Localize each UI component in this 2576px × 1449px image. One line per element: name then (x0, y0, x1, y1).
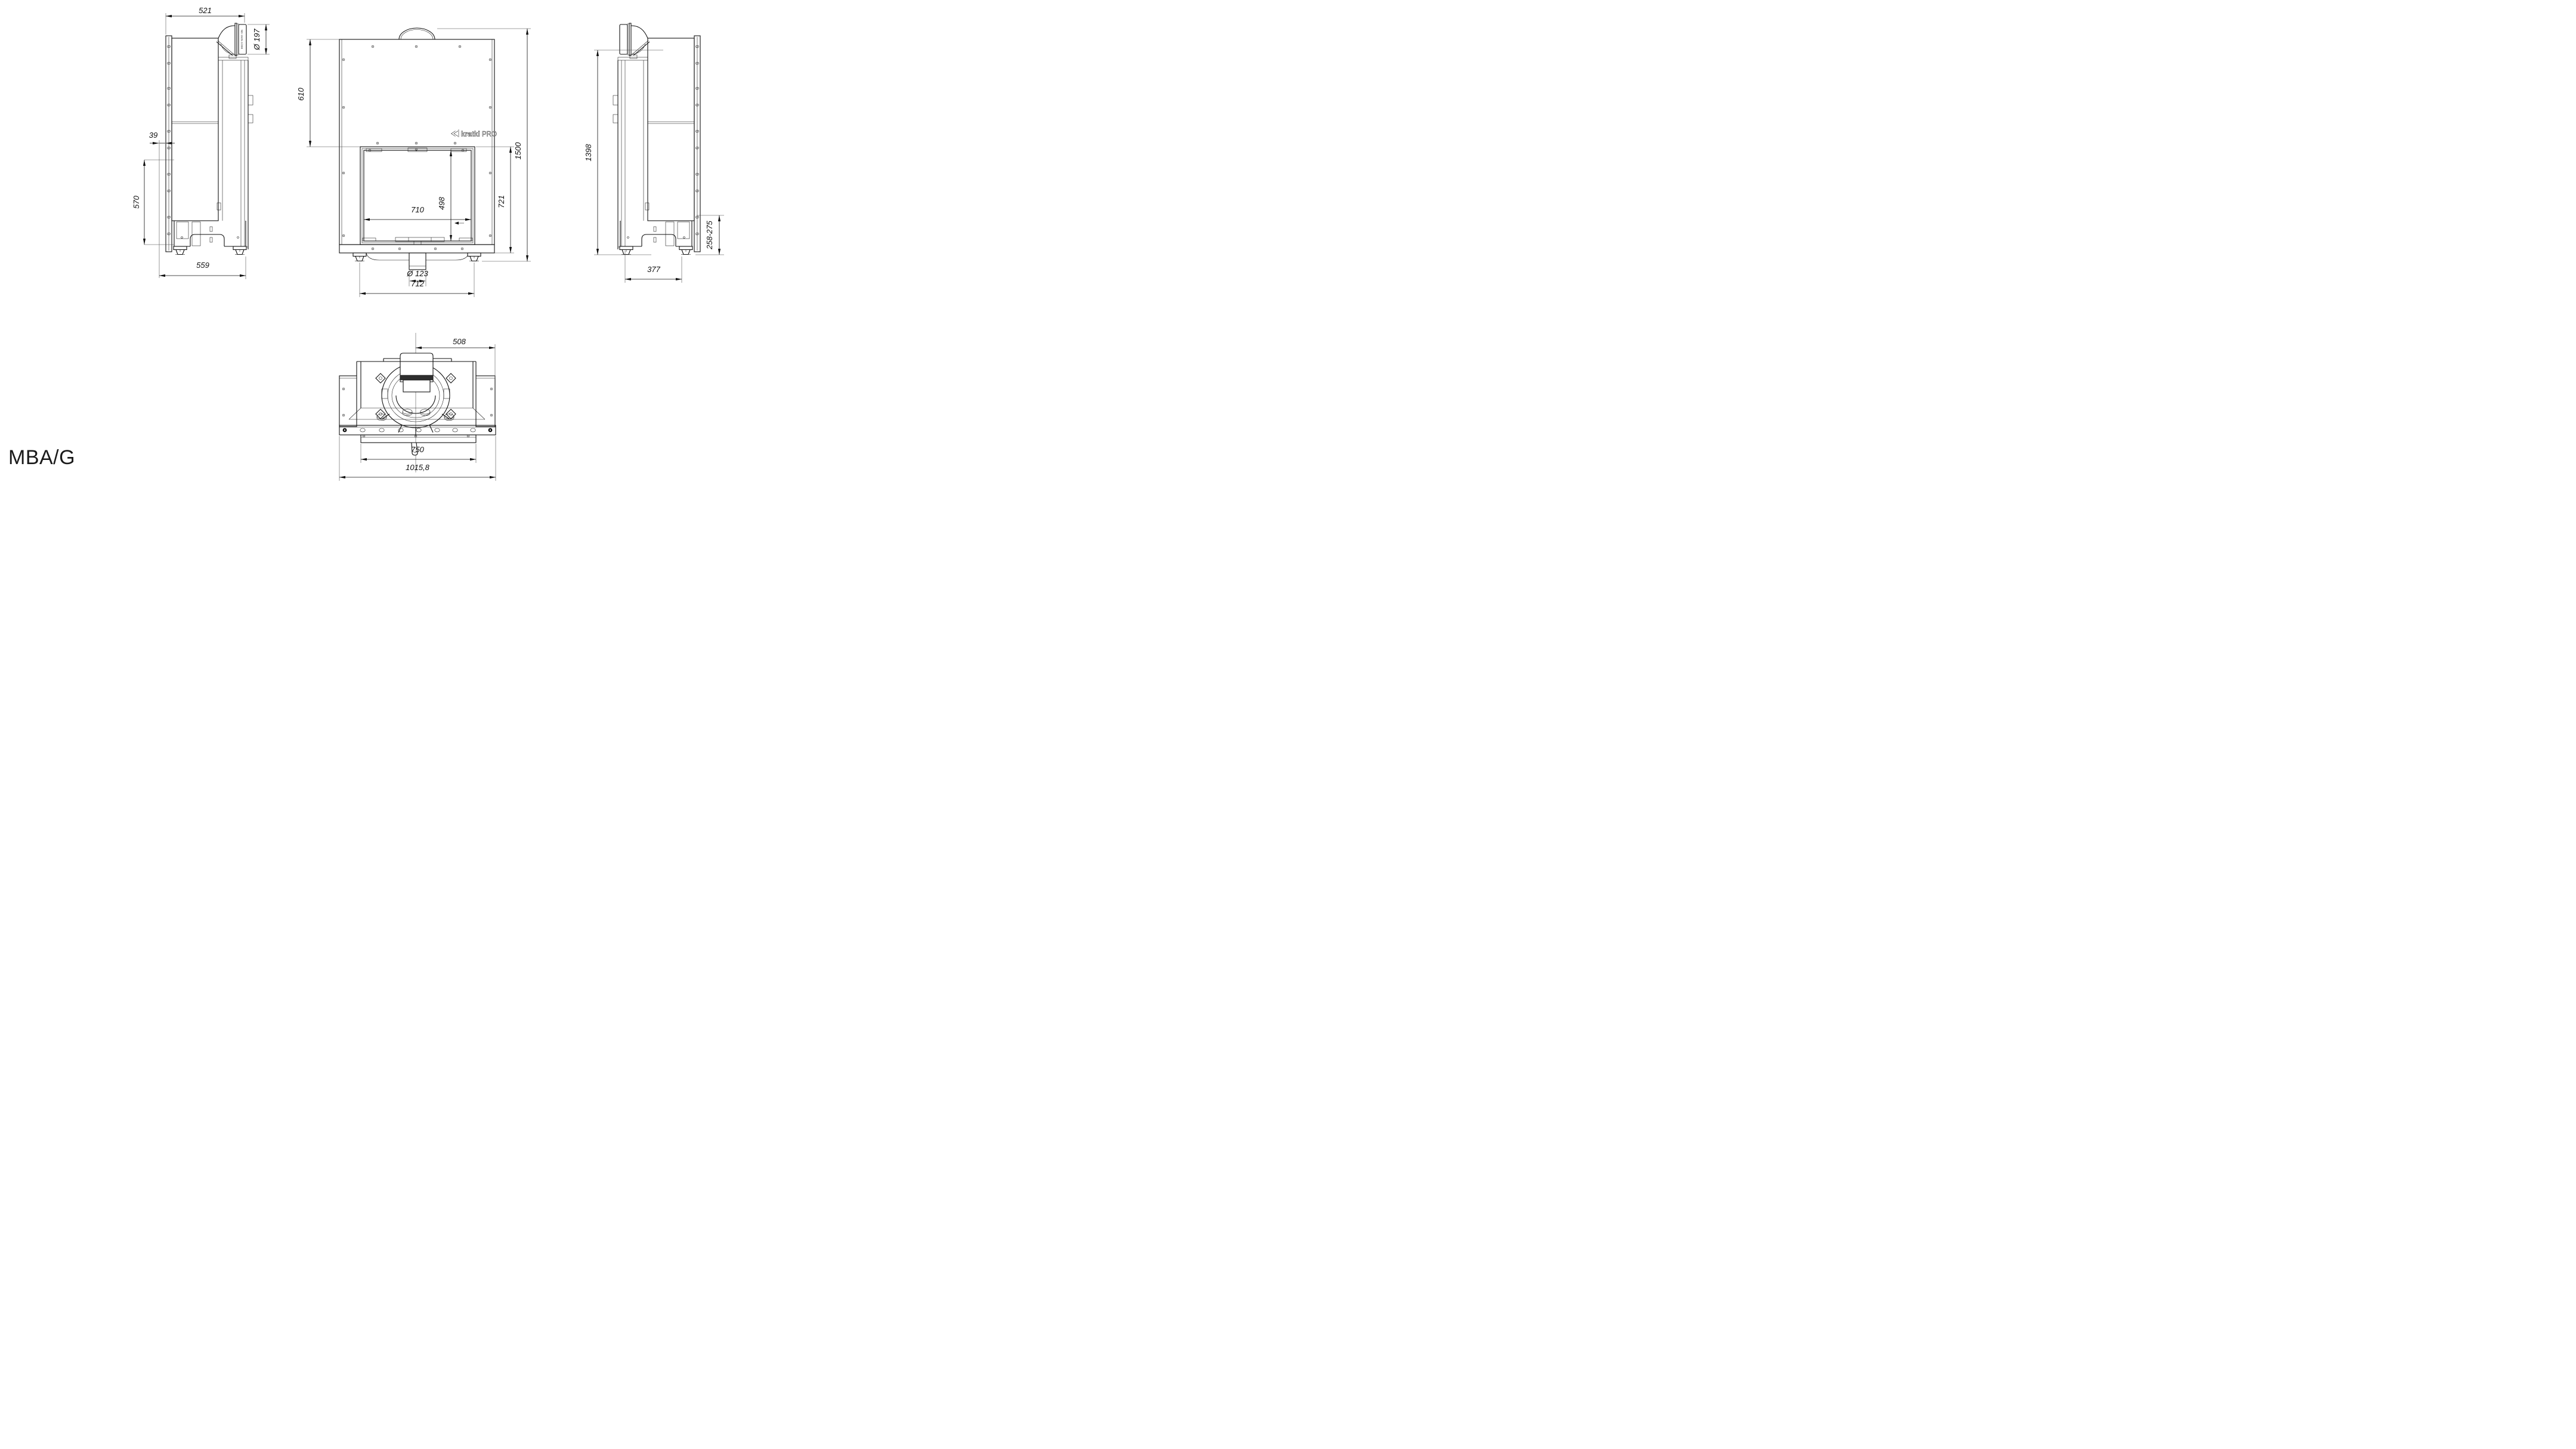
svg-text:1015,8: 1015,8 (406, 463, 430, 472)
drawing-page: ND-1525-1/200 521 (0, 0, 859, 483)
air-flow-arrow-icon (454, 222, 464, 225)
svg-text:377: 377 (647, 265, 660, 274)
svg-text:721: 721 (497, 195, 506, 208)
left-view-flue-elbow: ND-1525-1/200 (217, 23, 246, 58)
svg-text:258-275: 258-275 (705, 220, 714, 249)
right-view-base (620, 221, 692, 255)
right-view-body (613, 36, 700, 252)
model-title: MBA/G (8, 446, 75, 469)
right-view-flue-elbow (620, 23, 650, 58)
svg-text:610: 610 (296, 87, 305, 100)
svg-text:559: 559 (196, 261, 209, 270)
dim-right-base-depth: 377 (625, 251, 682, 283)
svg-text:710: 710 (411, 205, 424, 214)
dim-front-feet-spacing: 712 (360, 262, 474, 297)
dim-top-inner-width: 750 (361, 444, 476, 463)
svg-text:1500: 1500 (514, 142, 522, 160)
svg-text:498: 498 (437, 196, 446, 209)
dim-left-glass-height: 570 (132, 160, 174, 245)
dim-left-top-width: 521 (166, 6, 245, 35)
svg-text:39: 39 (149, 131, 157, 140)
svg-text:521: 521 (199, 6, 212, 15)
dim-right-body-height: 1398 (584, 50, 663, 255)
technical-drawing-canvas: ND-1525-1/200 521 (0, 0, 859, 483)
svg-text:Ø 197: Ø 197 (252, 29, 261, 51)
brand-name: kratki (461, 131, 480, 138)
svg-text:570: 570 (132, 195, 141, 208)
left-side-view: ND-1525-1/200 521 (132, 6, 270, 279)
front-view-base (339, 245, 494, 270)
dim-front-top-to-window: 610 (296, 39, 360, 147)
right-side-view: 1398 258-275 377 (584, 23, 724, 283)
brand-suffix: PRO (482, 131, 497, 138)
svg-text:712: 712 (411, 279, 424, 288)
svg-text:Ø 123: Ø 123 (406, 269, 428, 278)
dim-front-window-to-base: 721 (476, 147, 514, 253)
kratki-logo-icon (452, 129, 459, 137)
front-view: kratki PRO (296, 28, 531, 297)
brand-logo: kratki PRO (452, 129, 497, 138)
dim-front-total-height: 1500 (437, 29, 531, 261)
left-view-base (174, 221, 246, 255)
pipe-marking-label: ND-1525-1/200 (240, 30, 243, 50)
svg-text:508: 508 (453, 337, 466, 346)
dim-front-window-width: 710 (364, 205, 471, 220)
dim-left-base-depth: 559 (159, 257, 246, 279)
svg-text:1398: 1398 (584, 144, 593, 162)
dim-left-flue-diameter: Ø 197 (248, 24, 270, 54)
front-view-screws (342, 45, 491, 250)
dim-front-window-height: 498 (437, 150, 451, 241)
dim-right-base-height-range: 258-275 (695, 215, 724, 255)
left-view-body (166, 36, 253, 252)
dim-left-front-offset: 39 (149, 131, 175, 278)
svg-text:750: 750 (411, 445, 424, 454)
front-view-window (360, 147, 475, 245)
top-view: 508 750 1015,8 (339, 333, 496, 481)
